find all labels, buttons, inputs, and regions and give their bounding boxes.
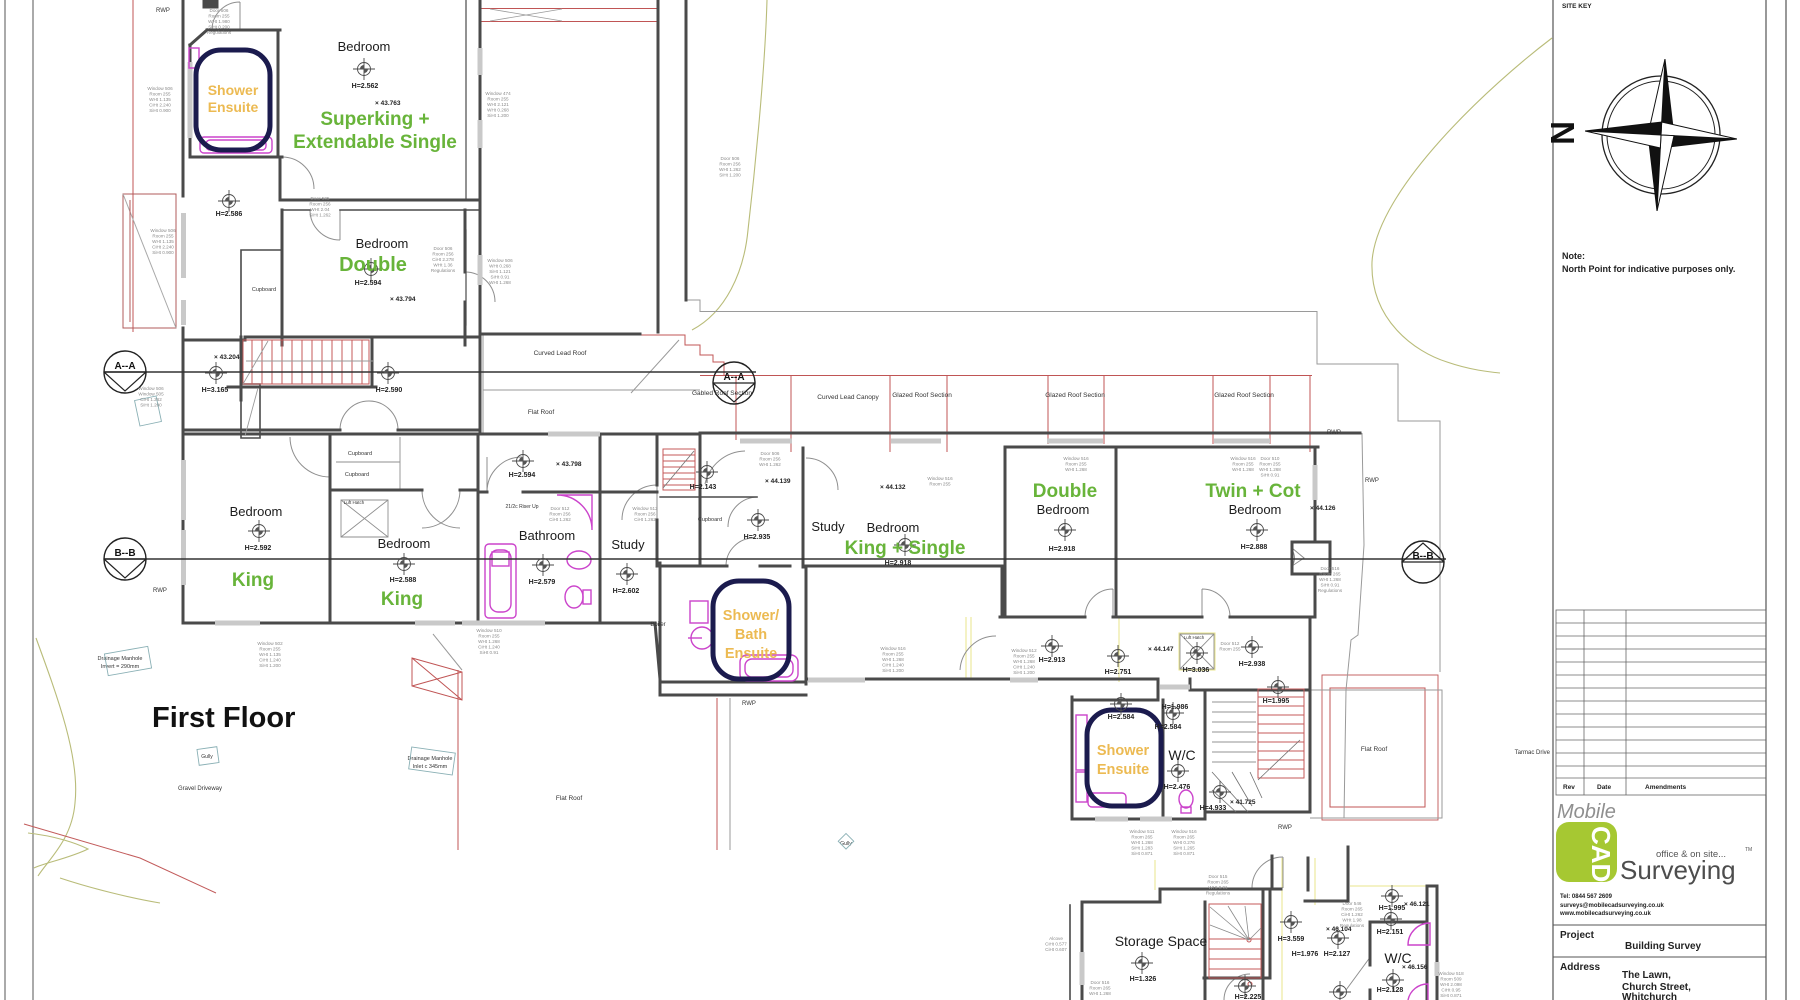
svg-text:Bath: Bath (735, 627, 767, 643)
svg-text:WHt 1.268: WHt 1.268 (1319, 577, 1341, 582)
svg-text:Whitchurch: Whitchurch (1622, 992, 1677, 1000)
svg-text:Room 255: Room 255 (1065, 462, 1087, 467)
svg-text:Window 506: Window 506 (138, 386, 164, 391)
svg-text:SiHt 1.200: SiHt 1.200 (140, 403, 162, 408)
svg-text:Surveying: Surveying (1620, 855, 1736, 885)
svg-text:WHt 2.098: WHt 2.098 (1440, 982, 1462, 987)
svg-text:Room 265: Room 265 (1341, 907, 1363, 912)
svg-text:SiHt 1.200: SiHt 1.200 (259, 663, 281, 668)
svg-text:CiHt 1.262: CiHt 1.262 (634, 517, 656, 522)
svg-text:Note:: Note: (1562, 251, 1585, 261)
svg-text:Regulations: Regulations (207, 30, 232, 35)
svg-text:Door 506: Door 506 (210, 8, 229, 13)
svg-text:Date: Date (1597, 784, 1611, 791)
svg-text:CiHt 2.240: CiHt 2.240 (149, 103, 171, 108)
svg-text:Room 256: Room 256 (759, 457, 781, 462)
svg-text:CiHt 1.240: CiHt 1.240 (882, 663, 904, 668)
svg-text:Door 510: Door 510 (1261, 456, 1280, 461)
svg-text:CiHt 2.278: CiHt 2.278 (432, 257, 454, 262)
svg-text:Window 518: Window 518 (1438, 971, 1464, 976)
svg-text:Room 265: Room 265 (1207, 880, 1229, 885)
svg-text:H=2.225: H=2.225 (1235, 994, 1262, 1000)
svg-text:The Lawn,: The Lawn, (1622, 970, 1671, 981)
svg-text:Door 506: Door 506 (434, 246, 453, 251)
svg-text:SiHt 0.91: SiHt 0.91 (1321, 583, 1340, 588)
svg-text:Window 511: Window 511 (1130, 829, 1155, 834)
svg-text:Building Survey: Building Survey (1625, 941, 1702, 952)
svg-text:WHt 0.276: WHt 0.276 (1173, 840, 1195, 845)
svg-text:CiHt 1.240: CiHt 1.240 (1013, 665, 1035, 670)
svg-text:H=2.918: H=2.918 (885, 560, 912, 567)
svg-text:× 43.798: × 43.798 (556, 461, 582, 468)
svg-text:Mobile: Mobile (1557, 801, 1616, 823)
svg-text:RWP: RWP (1278, 825, 1292, 831)
svg-text:× 44.147: × 44.147 (1148, 646, 1174, 653)
svg-text:Tel: 0844 567 2609: Tel: 0844 567 2609 (1560, 894, 1613, 900)
svg-text:Shower/: Shower/ (723, 608, 779, 624)
svg-text:H=2.913: H=2.913 (1039, 657, 1066, 664)
svg-text:WHt 1.135: WHt 1.135 (152, 239, 174, 244)
svg-text:H=2.602: H=2.602 (613, 588, 640, 595)
svg-text:× 44.139: × 44.139 (765, 478, 791, 485)
svg-text:Bedroom: Bedroom (867, 520, 920, 535)
svg-text:Room 255: Room 255 (259, 647, 281, 652)
svg-text:Bedroom: Bedroom (338, 39, 391, 54)
svg-text:WHt 1.268: WHt 1.268 (1131, 840, 1153, 845)
svg-text:CiHt 1.262: CiHt 1.262 (1341, 912, 1363, 917)
svg-text:Regulations: Regulations (1206, 891, 1231, 896)
svg-text:N: N (1544, 121, 1581, 145)
svg-text:Luft Hatch: Luft Hatch (344, 500, 365, 505)
svg-text:WHt 1.268: WHt 1.268 (1089, 991, 1111, 996)
svg-text:× 43.204: × 43.204 (214, 354, 240, 361)
svg-text:Room 265: Room 265 (1173, 835, 1195, 840)
svg-text:Room 256: Room 256 (719, 162, 741, 167)
svg-text:Bedroom: Bedroom (378, 536, 431, 551)
svg-text:Room 265: Room 265 (1131, 835, 1153, 840)
svg-text:SiHt 1.200: SiHt 1.200 (882, 668, 904, 673)
svg-text:B--B: B--B (1412, 551, 1433, 562)
svg-text:Glazed Roof Section: Glazed Roof Section (892, 392, 952, 399)
svg-text:Door 512: Door 512 (551, 506, 570, 511)
svg-text:B--B: B--B (114, 548, 135, 559)
svg-text:H=1.995: H=1.995 (1379, 905, 1406, 912)
svg-text:W/C: W/C (1168, 747, 1195, 763)
svg-text:H=1.326: H=1.326 (1130, 976, 1157, 983)
svg-text:SiHt 1.265: SiHt 1.265 (1173, 846, 1195, 851)
svg-text:21/2c Riser Up: 21/2c Riser Up (505, 504, 538, 510)
svg-text:Window 474: Window 474 (485, 91, 511, 96)
svg-text:× 43.763: × 43.763 (375, 100, 401, 107)
svg-text:H=2.562: H=2.562 (352, 83, 379, 90)
svg-text:SiHt 0.91: SiHt 0.91 (491, 275, 510, 280)
svg-text:Window 516: Window 516 (1063, 456, 1089, 461)
svg-text:Room 255: Room 255 (929, 482, 951, 487)
svg-text:Superking +: Superking + (320, 109, 429, 130)
svg-text:Room 255: Room 255 (1259, 462, 1281, 467)
svg-text:Amendments: Amendments (1645, 784, 1687, 791)
svg-text:Room 255: Room 255 (152, 234, 174, 239)
svg-text:Boiler: Boiler (650, 622, 665, 628)
svg-text:CiHt 1.262: CiHt 1.262 (549, 517, 571, 522)
svg-text:WHt 1.268: WHt 1.268 (489, 280, 511, 285)
svg-text:Room 255: Room 255 (208, 14, 230, 19)
svg-text:WHt 1.135: WHt 1.135 (149, 97, 171, 102)
svg-text:× 46.156: × 46.156 (1402, 964, 1428, 971)
svg-text:H=2.751: H=2.751 (1105, 669, 1132, 676)
svg-text:WHt 0.91: WHt 0.91 (1208, 885, 1228, 890)
svg-text:Door 506: Door 506 (761, 451, 780, 456)
svg-text:SiHt 1.283: SiHt 1.283 (1131, 846, 1153, 851)
svg-text:WHt 1.98: WHt 1.98 (1342, 918, 1362, 923)
svg-text:Door 506: Door 506 (721, 156, 740, 161)
svg-text:Extendable Single: Extendable Single (293, 132, 457, 153)
svg-text:Window 512: Window 512 (1011, 648, 1037, 653)
svg-text:Door 546: Door 546 (1343, 901, 1362, 906)
svg-text:H=2.588: H=2.588 (390, 577, 417, 584)
svg-text:H=2.128: H=2.128 (1377, 987, 1404, 994)
svg-text:Double: Double (1033, 481, 1097, 502)
svg-text:H=2.938: H=2.938 (1239, 661, 1266, 668)
svg-text:Curved Lead Canopy: Curved Lead Canopy (817, 394, 879, 401)
svg-text:Room 255: Room 255 (1013, 654, 1035, 659)
svg-text:CiHt 0.577: CiHt 0.577 (1045, 942, 1067, 947)
svg-text:Window 506: Window 506 (147, 86, 173, 91)
svg-text:Glazed Roof Section: Glazed Roof Section (1214, 392, 1274, 399)
svg-text:× 44.126: × 44.126 (1310, 505, 1336, 512)
svg-text:WHt 1.36: WHt 1.36 (433, 263, 453, 268)
svg-text:Storage Space: Storage Space (1115, 933, 1208, 949)
svg-text:SITE KEY: SITE KEY (1562, 3, 1592, 10)
svg-text:Drainage Manhole: Drainage Manhole (98, 656, 143, 662)
svg-text:Window 505: Window 505 (138, 392, 164, 397)
svg-text:A--A: A--A (114, 361, 135, 372)
svg-text:WHt 2.04: WHt 2.04 (310, 207, 330, 212)
svg-text:H=2.592: H=2.592 (245, 545, 272, 552)
svg-text:H=2.476: H=2.476 (1164, 784, 1191, 791)
svg-text:Bathroom: Bathroom (519, 528, 575, 543)
svg-text:SiHt 0.871: SiHt 0.871 (1173, 851, 1195, 856)
svg-text:Ensuite: Ensuite (725, 646, 777, 662)
svg-text:Shower: Shower (1097, 743, 1150, 759)
svg-text:WHt 0.268: WHt 0.268 (487, 108, 509, 113)
svg-text:Study: Study (611, 537, 645, 552)
svg-text:Ensuite: Ensuite (1097, 762, 1149, 778)
svg-text:Window 516: Window 516 (927, 476, 953, 481)
svg-text:Curved Lead Roof: Curved Lead Roof (534, 350, 587, 357)
svg-text:www.mobilecadsurveying.co.uk: www.mobilecadsurveying.co.uk (1559, 911, 1651, 917)
svg-text:Luft Hatch: Luft Hatch (1184, 635, 1205, 640)
svg-text:RWP: RWP (153, 588, 167, 594)
svg-text:Room 256: Room 256 (634, 512, 656, 517)
svg-text:Inlet c 345mm: Inlet c 345mm (413, 764, 448, 770)
svg-text:Glazed Roof Section: Glazed Roof Section (1045, 392, 1105, 399)
svg-text:SiHt 0.900: SiHt 0.900 (152, 250, 174, 255)
svg-text:H=2.594: H=2.594 (509, 472, 536, 479)
svg-text:CiHt 0.95: CiHt 0.95 (1441, 988, 1461, 993)
svg-text:SiHt 0.900: SiHt 0.900 (149, 108, 171, 113)
svg-text:RWP: RWP (742, 701, 756, 707)
svg-text:H=2.888: H=2.888 (1241, 544, 1268, 551)
svg-text:Room 255: Room 255 (487, 97, 509, 102)
svg-text:H=1.976: H=1.976 (1292, 951, 1319, 958)
svg-text:Cupboard: Cupboard (698, 517, 722, 523)
svg-text:Room 255: Room 255 (149, 92, 171, 97)
svg-text:H=1.995: H=1.995 (1263, 698, 1290, 705)
svg-text:North Point for indicative pur: North Point for indicative purposes only… (1562, 264, 1735, 274)
svg-text:Window 512: Window 512 (632, 506, 658, 511)
svg-text:CiHt 2.240: CiHt 2.240 (152, 245, 174, 250)
svg-text:Address: Address (1560, 962, 1600, 973)
svg-text:SiHt 1.262: SiHt 1.262 (309, 213, 331, 218)
svg-text:TM: TM (1745, 847, 1752, 853)
svg-text:H=2.143: H=2.143 (690, 484, 717, 491)
svg-text:Room 255: Room 255 (478, 634, 500, 639)
svg-text:Room 265: Room 265 (1089, 986, 1111, 991)
svg-text:WHt 1.980: WHt 1.980 (208, 19, 230, 24)
svg-text:King: King (381, 589, 423, 610)
svg-text:WHt 1.268: WHt 1.268 (1065, 467, 1087, 472)
svg-text:Window 516: Window 516 (880, 646, 906, 651)
svg-text:RWP: RWP (1365, 478, 1379, 484)
svg-text:Door 516: Door 516 (1321, 566, 1340, 571)
svg-text:Window 510: Window 510 (476, 628, 502, 633)
svg-text:WHt 1.262: WHt 1.262 (719, 167, 741, 172)
svg-text:Alcove: Alcove (1049, 936, 1063, 941)
svg-text:SiHt 0.91: SiHt 0.91 (480, 650, 499, 655)
svg-text:Bedroom: Bedroom (230, 504, 283, 519)
svg-text:A--A: A--A (723, 372, 744, 383)
svg-text:WHt 0.268: WHt 0.268 (489, 264, 511, 269)
svg-text:WHt 2.121: WHt 2.121 (487, 102, 509, 107)
svg-text:Door 516: Door 516 (1091, 980, 1110, 985)
svg-text:Flat Roof: Flat Roof (1361, 746, 1388, 753)
svg-text:Drainage Manhole: Drainage Manhole (408, 756, 453, 762)
svg-text:WHt 1.268: WHt 1.268 (1232, 467, 1254, 472)
svg-text:Door 515: Door 515 (1209, 874, 1228, 879)
svg-text:Room 256: Room 256 (432, 252, 454, 257)
svg-text:WHt 1.268: WHt 1.268 (478, 639, 500, 644)
svg-text:CAD: CAD (1586, 826, 1616, 882)
svg-text:H=3.559: H=3.559 (1278, 936, 1305, 943)
svg-text:H=2.590: H=2.590 (376, 387, 403, 394)
svg-text:SiHt 0.871: SiHt 0.871 (1131, 851, 1153, 856)
svg-text:H=3.036: H=3.036 (1183, 667, 1210, 674)
svg-text:Room 255: Room 255 (882, 652, 904, 657)
svg-text:Shower: Shower (208, 82, 259, 98)
svg-text:First Floor: First Floor (152, 702, 295, 734)
svg-text:Gabled Roof Section: Gabled Roof Section (692, 390, 752, 397)
svg-text:Window 506: Window 506 (150, 228, 176, 233)
svg-text:Flat Roof: Flat Roof (528, 409, 555, 416)
svg-text:Room 509: Room 509 (1440, 977, 1462, 982)
svg-text:SiHt 0.200: SiHt 0.200 (208, 25, 230, 30)
svg-text:H=2.586: H=2.586 (216, 211, 243, 218)
svg-text:Bedroom: Bedroom (1037, 502, 1090, 517)
svg-text:H=1.986: H=1.986 (1162, 704, 1189, 711)
svg-text:Room 256: Room 256 (549, 512, 571, 517)
svg-text:RWP: RWP (156, 8, 170, 14)
svg-text:× 41.725: × 41.725 (1230, 799, 1256, 806)
svg-text:Gravel Driveway: Gravel Driveway (178, 786, 222, 792)
svg-text:King + Single: King + Single (845, 538, 966, 559)
svg-text:WHt 1.268: WHt 1.268 (1259, 467, 1281, 472)
svg-text:H=4.933: H=4.933 (1200, 805, 1227, 812)
svg-text:Cupboard: Cupboard (345, 472, 369, 478)
svg-text:Cupboard: Cupboard (348, 451, 372, 457)
svg-text:WHt 1.268: WHt 1.268 (882, 657, 904, 662)
svg-text:Regulations: Regulations (1318, 588, 1343, 593)
svg-text:Window 516: Window 516 (1230, 456, 1256, 461)
svg-text:RWP: RWP (1327, 430, 1341, 436)
svg-text:SiHt 0.91: SiHt 0.91 (1261, 473, 1280, 478)
svg-text:Window 502: Window 502 (257, 641, 283, 646)
svg-text:SiHt 1.200: SiHt 1.200 (719, 173, 741, 178)
svg-text:Double: Double (339, 254, 407, 276)
svg-text:H=2.918: H=2.918 (1049, 546, 1076, 553)
svg-text:Room 255: Room 255 (1232, 462, 1254, 467)
svg-text:SiHt 0.871: SiHt 0.871 (1440, 993, 1462, 998)
svg-text:Regulations: Regulations (1340, 923, 1365, 928)
svg-text:Rev: Rev (1563, 784, 1575, 791)
svg-text:Study: Study (811, 519, 845, 534)
svg-text:× 43.794: × 43.794 (390, 296, 416, 303)
svg-text:Window 516: Window 516 (1171, 829, 1197, 834)
svg-text:H=2.579: H=2.579 (529, 579, 556, 586)
svg-text:× 44.132: × 44.132 (880, 484, 906, 491)
svg-text:Room 255: Room 255 (1219, 647, 1241, 652)
svg-text:H=2.584: H=2.584 (1155, 724, 1182, 731)
svg-text:Bedroom: Bedroom (356, 236, 409, 251)
svg-text:SiHt 1.200: SiHt 1.200 (487, 113, 509, 118)
svg-text:CiHt 1.240: CiHt 1.240 (259, 658, 281, 663)
svg-text:CiHt 0.607: CiHt 0.607 (1045, 947, 1067, 952)
svg-text:surveys@mobilecadsurveying.co.: surveys@mobilecadsurveying.co.uk (1560, 903, 1665, 909)
svg-text:WHt 1.135: WHt 1.135 (259, 652, 281, 657)
svg-text:Tarmac Drive: Tarmac Drive (1515, 750, 1551, 756)
svg-text:H=3.165: H=3.165 (202, 387, 229, 394)
svg-text:× 46.121: × 46.121 (1404, 901, 1430, 908)
svg-text:H=2.127: H=2.127 (1324, 951, 1351, 958)
svg-text:Door 512: Door 512 (1221, 641, 1240, 646)
svg-text:Project: Project (1560, 930, 1595, 941)
svg-text:Gully: Gully (840, 841, 852, 847)
svg-text:Room 256: Room 256 (309, 202, 331, 207)
svg-text:Ensuite: Ensuite (208, 99, 259, 115)
svg-text:WHt 1.268: WHt 1.268 (1013, 659, 1035, 664)
svg-text:Window 506: Window 506 (487, 258, 513, 263)
svg-text:CiHt 1.240: CiHt 1.240 (478, 645, 500, 650)
svg-text:Twin + Cot: Twin + Cot (1205, 481, 1301, 502)
svg-text:Room 265: Room 265 (1319, 572, 1341, 577)
svg-text:WHt 1.262: WHt 1.262 (759, 462, 781, 467)
svg-text:H=2.584: H=2.584 (1108, 714, 1135, 721)
svg-text:Regulations: Regulations (431, 268, 456, 273)
svg-text:Gully: Gully (201, 754, 213, 760)
svg-text:King: King (232, 570, 274, 591)
svg-text:Flat Roof: Flat Roof (556, 795, 583, 802)
svg-text:CiHt 1.262: CiHt 1.262 (140, 397, 162, 402)
svg-text:Cupboard: Cupboard (252, 287, 276, 293)
svg-text:SiHt 1.121: SiHt 1.121 (489, 269, 511, 274)
svg-text:SiHt 1.200: SiHt 1.200 (1013, 670, 1035, 675)
svg-text:Door 505: Door 505 (311, 196, 330, 201)
svg-text:Bedroom: Bedroom (1229, 502, 1282, 517)
svg-text:H=2.151: H=2.151 (1377, 929, 1404, 936)
svg-text:H=2.935: H=2.935 (744, 534, 771, 541)
svg-text:H=2.594: H=2.594 (355, 280, 382, 287)
